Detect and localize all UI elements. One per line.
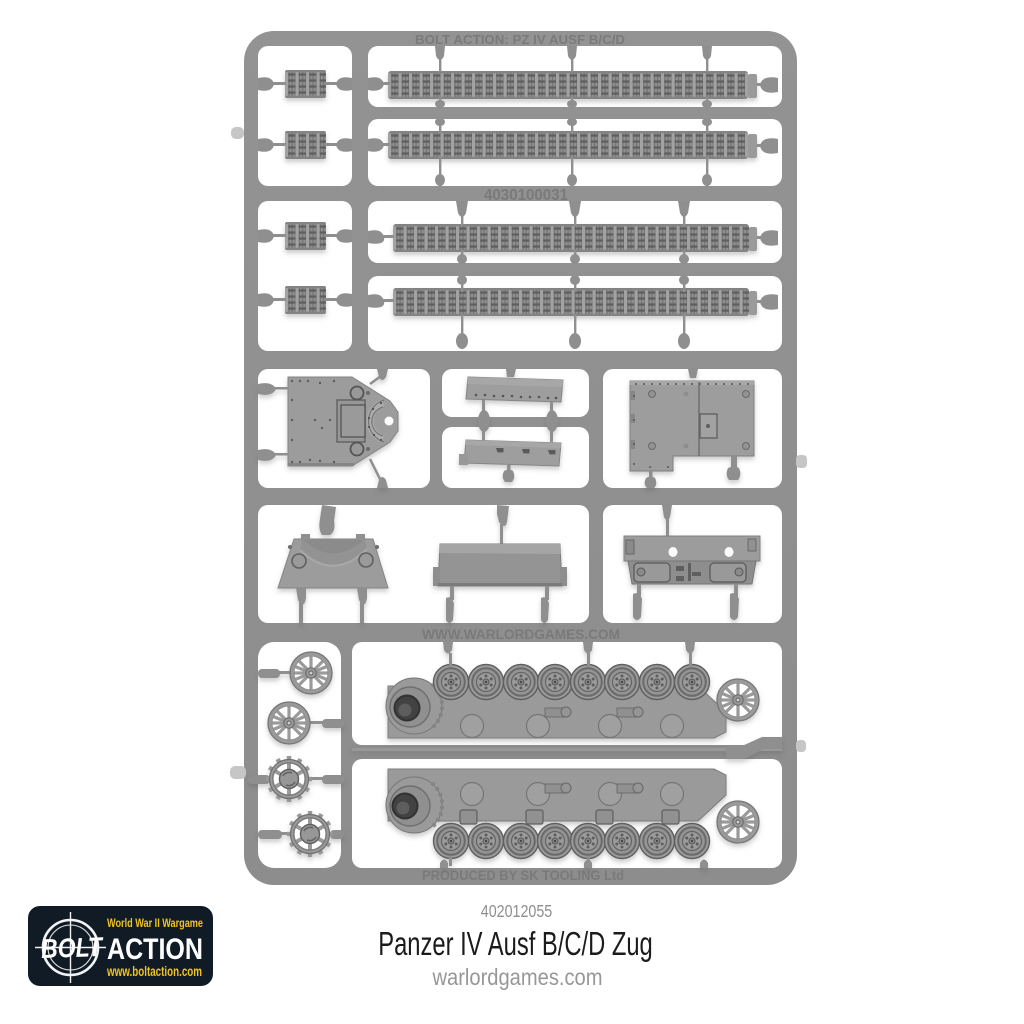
svg-text:www.boltaction.com: www.boltaction.com xyxy=(106,964,202,979)
svg-text:4030100031: 4030100031 xyxy=(484,187,568,204)
svg-text:World War II Wargame: World War II Wargame xyxy=(107,918,203,930)
svg-text:402012055: 402012055 xyxy=(481,901,553,921)
svg-text:Panzer IV Ausf B/C/D Zug: Panzer IV Ausf B/C/D Zug xyxy=(378,925,653,962)
svg-text:PRODUCED BY SK TOOLING Ltd: PRODUCED BY SK TOOLING Ltd xyxy=(422,868,624,883)
svg-text:BOLT ACTION: PZ IV AUSF B/C/D: BOLT ACTION: PZ IV AUSF B/C/D xyxy=(415,32,625,47)
svg-text:BOLT: BOLT xyxy=(41,932,105,964)
svg-text:WWW.WARLORDGAMES.COM: WWW.WARLORDGAMES.COM xyxy=(422,627,620,642)
svg-text:ACTION: ACTION xyxy=(107,933,203,966)
svg-text:warlordgames.com: warlordgames.com xyxy=(432,964,603,990)
